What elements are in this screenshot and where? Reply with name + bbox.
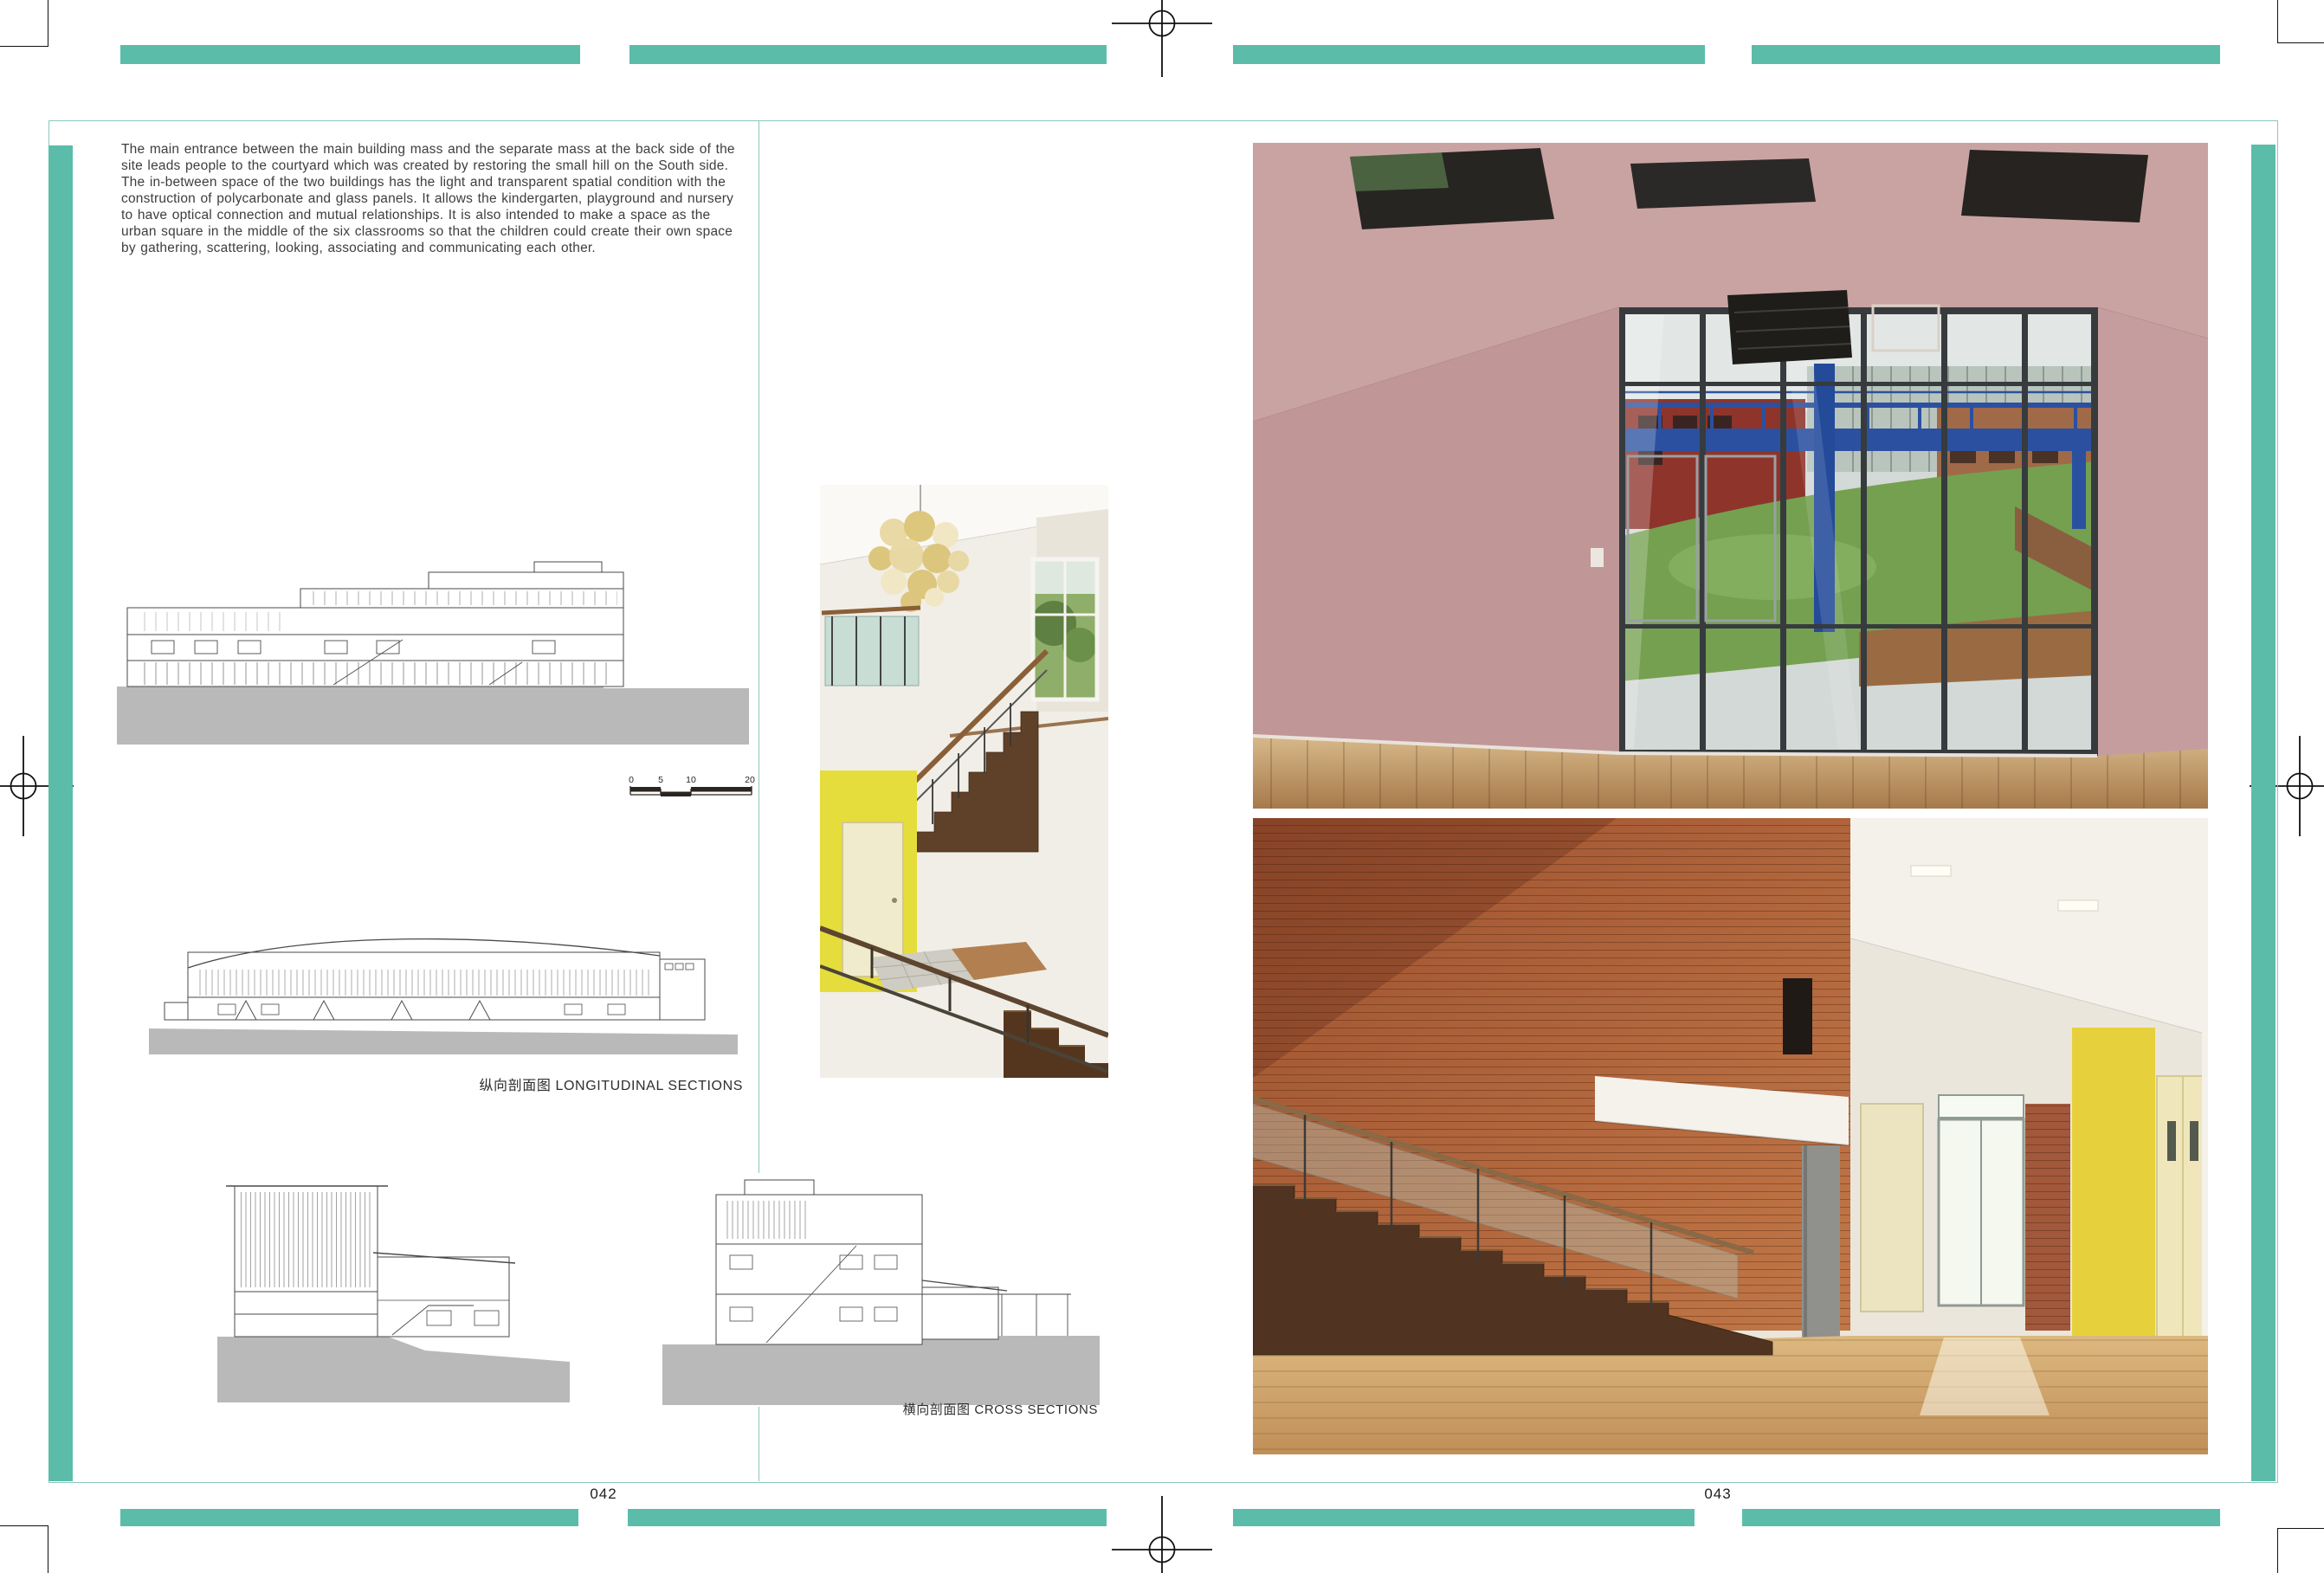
registration-mark-bottom-center (1106, 1493, 1218, 1573)
crop-mark-bottom-left (0, 1525, 48, 1573)
bottom-bar-2 (628, 1509, 1107, 1526)
cross-label-en: CROSS SECTIONS (974, 1402, 1098, 1417)
bottom-bar-4 (1742, 1509, 2220, 1526)
classroom-photo (1253, 143, 2208, 809)
longitudinal-section-drawing-2 (149, 899, 738, 1054)
top-bar-4 (1752, 45, 2220, 64)
svg-text:0: 0 (629, 775, 634, 785)
cross-section-drawing-1 (210, 1170, 570, 1404)
stairwell-photo (820, 485, 1108, 1078)
svg-text:5: 5 (658, 775, 663, 785)
page-number-right: 043 (1683, 1486, 1753, 1503)
longitudinal-section-drawing-1 (117, 558, 749, 745)
right-edge-strip (2251, 145, 2276, 1481)
top-bar-3 (1233, 45, 1705, 64)
cross-section-drawing-2 (662, 1173, 1100, 1407)
svg-text:20: 20 (745, 775, 755, 785)
svg-text:10: 10 (686, 775, 696, 785)
registration-mark-top-center (1106, 0, 1218, 80)
cross-sections-label: 横向剖面图 CROSS SECTIONS (786, 1400, 1098, 1418)
longitudinal-label-cn: 纵向剖面图 (479, 1079, 551, 1093)
book-spread: The main entrance between the main build… (0, 0, 2324, 1573)
longitudinal-label-en: LONGITUDINAL SECTIONS (556, 1079, 743, 1093)
intro-paragraph: The main entrance between the main build… (121, 141, 739, 256)
left-edge-strip (48, 145, 73, 1481)
top-bar-1 (120, 45, 580, 64)
bottom-bar-1 (120, 1509, 578, 1526)
crop-mark-bottom-right (2277, 1528, 2324, 1573)
crop-mark-top-right (2277, 0, 2324, 43)
crop-mark-top-left (0, 0, 48, 47)
scale-bar: 0 5 10 20 (627, 774, 755, 803)
page-number-left: 042 (569, 1486, 638, 1503)
longitudinal-sections-label: 纵向剖面图 LONGITUDINAL SECTIONS (431, 1073, 743, 1094)
bottom-bar-3 (1233, 1509, 1695, 1526)
top-bar-2 (629, 45, 1107, 64)
cross-label-cn: 横向剖面图 (903, 1402, 971, 1417)
hall-photo (1253, 818, 2208, 1454)
